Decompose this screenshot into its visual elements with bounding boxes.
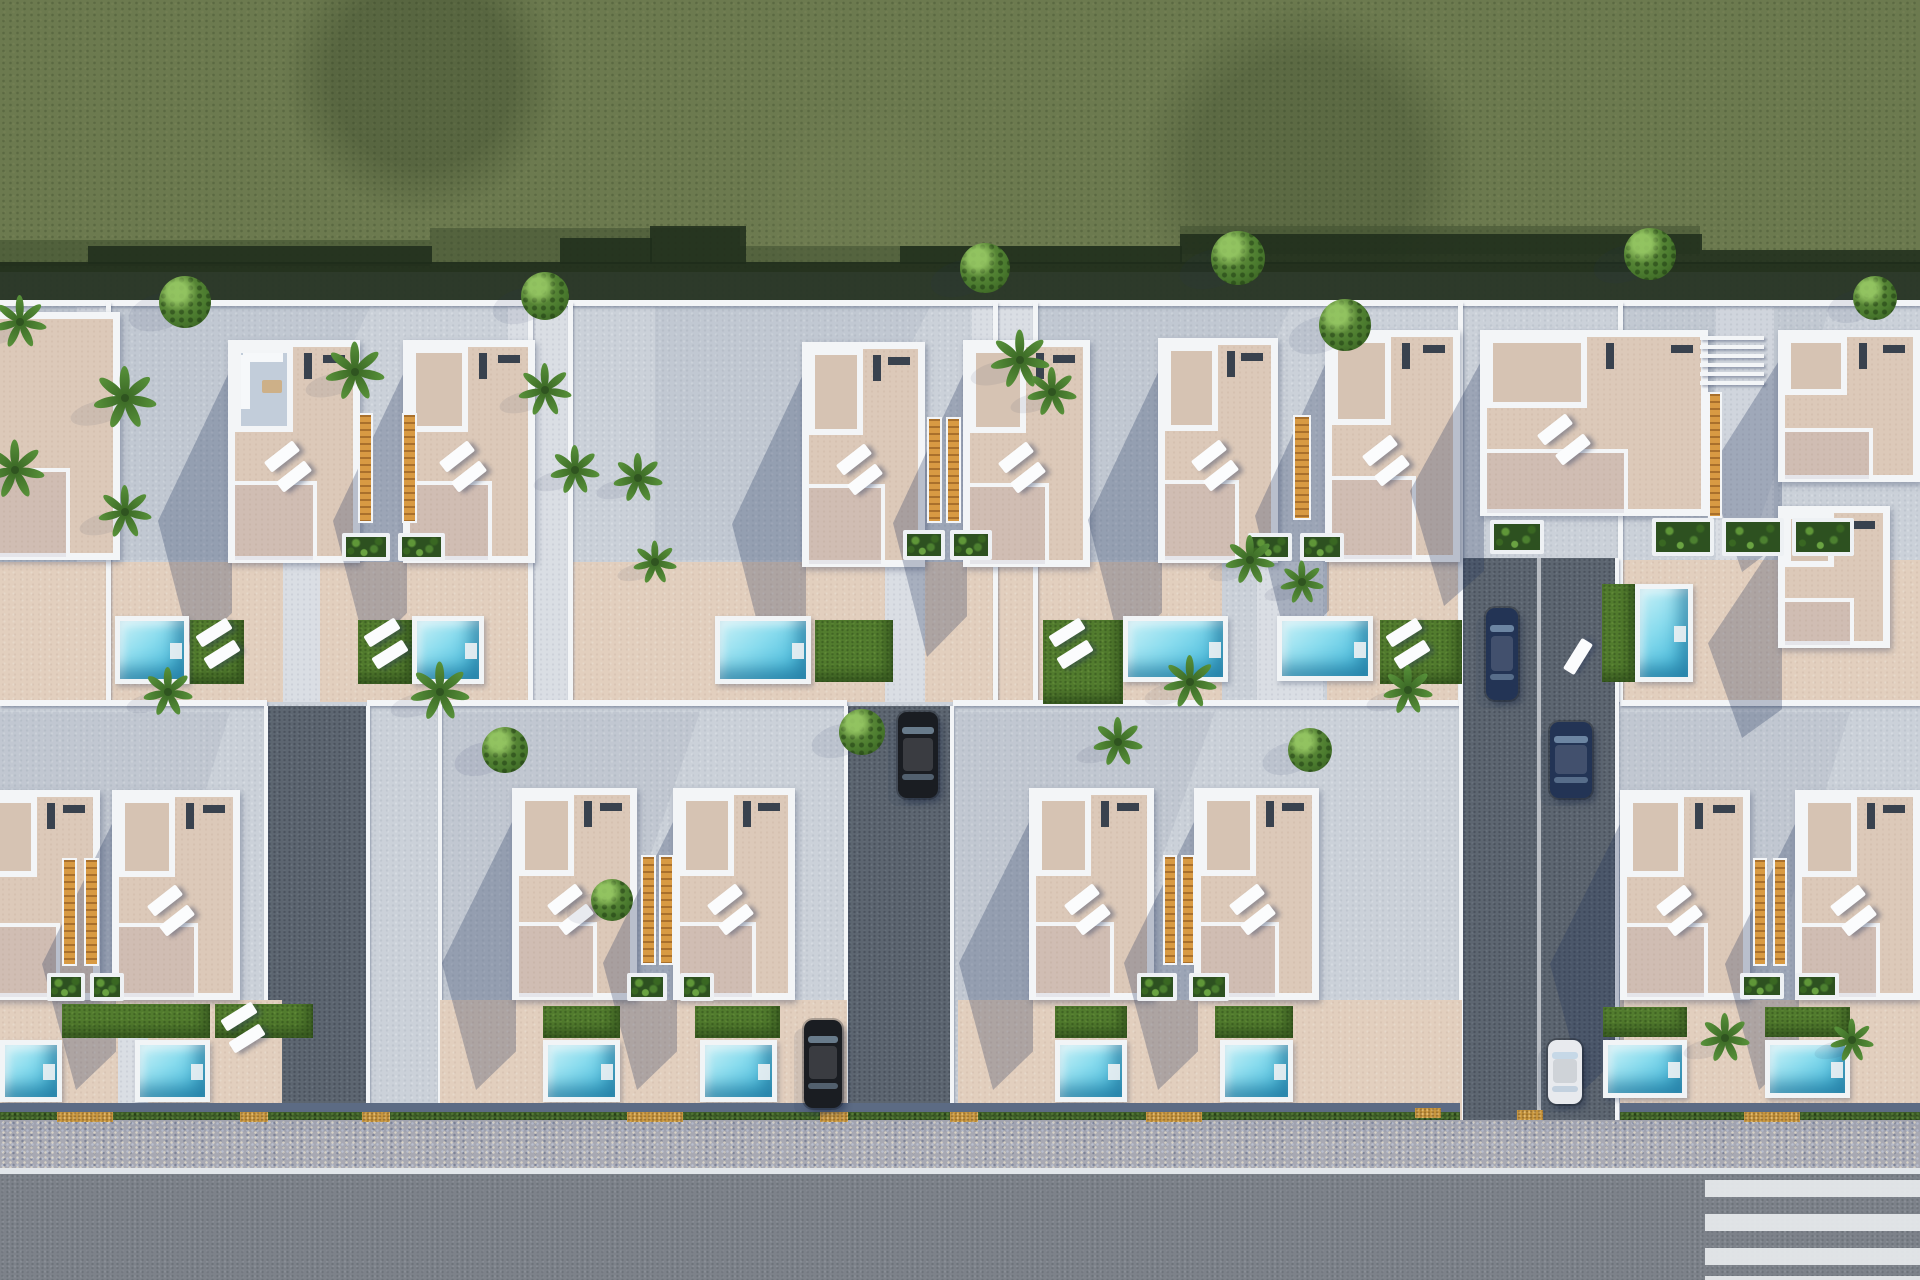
palm-crown [1246, 556, 1254, 564]
rooftop-room [1785, 337, 1847, 395]
lawn-band [1603, 1007, 1687, 1037]
boundary-wall-shade [0, 1103, 1460, 1112]
palm-tree [0, 300, 42, 344]
roof-terrace [1487, 337, 1701, 509]
sun-lounger [371, 639, 408, 669]
car-roof [1491, 636, 1513, 671]
pergola-slat [1700, 372, 1764, 376]
grass-edge-bump [650, 226, 746, 264]
gate-pad [362, 1112, 390, 1122]
tree [839, 709, 885, 755]
palm-crown [11, 466, 19, 474]
road [0, 1174, 1920, 1280]
car-black [804, 1020, 842, 1108]
lot-wall-top [0, 300, 1920, 306]
pool-step [1209, 642, 1221, 658]
roof-terrace [1201, 795, 1312, 993]
stairwell [358, 413, 373, 523]
lower-roof-section [1785, 428, 1873, 479]
pool-step [792, 643, 804, 659]
stairwell [62, 858, 77, 966]
tree [482, 727, 528, 773]
car-windshield [808, 1036, 838, 1043]
stair-window [1402, 343, 1410, 369]
stairwell [641, 855, 656, 965]
car-windshield [902, 727, 934, 734]
pool-vertical [1635, 584, 1693, 682]
pool [135, 1040, 210, 1102]
roof-terrace [119, 797, 233, 993]
palm-tree [1230, 540, 1270, 580]
car-black [898, 712, 938, 798]
stairwell [1293, 415, 1311, 520]
rooftop-room [410, 347, 468, 432]
palm-tree [637, 544, 673, 580]
palm-tree [99, 372, 151, 424]
vent-window [1282, 803, 1304, 811]
lawn-band [543, 1006, 620, 1038]
palm-tree [1834, 1022, 1870, 1058]
lawn-strip [1602, 584, 1635, 682]
tree [1624, 228, 1676, 280]
gate-pad [627, 1112, 683, 1122]
stair-window [1227, 351, 1235, 377]
stair-window [479, 353, 487, 379]
pool-step [191, 1064, 203, 1080]
entry-path [283, 562, 320, 702]
lower-roof-section [1332, 476, 1416, 559]
stairwell [927, 417, 942, 523]
palm-crown [1114, 738, 1122, 746]
stairwell [659, 855, 674, 965]
tree [1288, 728, 1332, 772]
stair-window [743, 801, 751, 827]
tree [1211, 231, 1265, 285]
villa [403, 340, 535, 563]
planter [680, 973, 714, 1001]
vent-window [758, 803, 780, 811]
pool [543, 1040, 620, 1102]
vent-window [1423, 345, 1445, 353]
car-rear-window [808, 1083, 838, 1089]
palm-tree [103, 490, 147, 534]
vent-window [498, 355, 520, 363]
palm-crown [1016, 356, 1024, 364]
tree [960, 243, 1010, 293]
driveway-wall [950, 706, 954, 1122]
lawn [190, 620, 244, 684]
palm-crown [1848, 1036, 1856, 1044]
crosswalk-stripe [1705, 1276, 1920, 1280]
palm-tree [1284, 564, 1320, 600]
stair-window [1101, 801, 1109, 827]
palm-crown [1048, 388, 1056, 396]
grass-edge-bump [1702, 250, 1920, 264]
car-navy [1550, 722, 1592, 798]
planter [1300, 533, 1344, 561]
roof-terrace [1165, 345, 1271, 556]
driveway-wall [366, 706, 370, 1122]
stair-window [584, 801, 592, 827]
planter [1189, 973, 1229, 1001]
grass-edge-bump [88, 246, 432, 264]
pergola-slat [1700, 381, 1764, 385]
stair-window [186, 803, 194, 829]
villa [112, 790, 240, 1000]
planter [903, 530, 945, 560]
palm-tree [1705, 1018, 1745, 1058]
palm-tree [0, 446, 39, 494]
lawn-band [1215, 1006, 1293, 1038]
car-white [1548, 1040, 1582, 1104]
car-rear-window [902, 774, 934, 780]
roof-terrace [1785, 337, 1913, 475]
vent-window [1053, 355, 1075, 363]
pool-step [170, 643, 182, 659]
roof-terrace [1802, 797, 1913, 993]
lower-roof-section [119, 923, 198, 997]
gate-pad [1146, 1112, 1202, 1122]
stairwell [84, 858, 99, 966]
palm-crown [541, 386, 549, 394]
pergola-slat [1700, 363, 1764, 367]
palm-tree [555, 450, 595, 490]
lawn [815, 620, 893, 682]
lawn-band [695, 1006, 780, 1038]
car-rear-window [1552, 1086, 1578, 1092]
palm-crown [16, 318, 24, 326]
stair-window [1859, 343, 1867, 369]
lower-roof-section [1036, 922, 1114, 997]
palm-tree [416, 668, 464, 716]
vent-window [1117, 803, 1139, 811]
palm-crown [121, 508, 129, 516]
vent-window [63, 805, 85, 813]
palm-tree [148, 672, 188, 712]
palm-crown [651, 558, 659, 566]
rooftop-room [1165, 345, 1218, 431]
lower-roof-section [1627, 923, 1708, 997]
vent-window [888, 357, 910, 365]
rooftop-room [1802, 797, 1857, 877]
pool [1055, 1040, 1127, 1102]
car-roof [1555, 745, 1587, 774]
lower-roof-section [809, 484, 885, 564]
car-windshield [1554, 736, 1588, 743]
lower-roof-section [1785, 598, 1854, 645]
planter [1137, 973, 1177, 1001]
planter [1740, 973, 1784, 999]
car-roof [903, 738, 933, 771]
pool-step [43, 1064, 55, 1080]
stairwell [1181, 855, 1195, 965]
sun-lounger [203, 639, 240, 669]
vent-window [203, 805, 225, 813]
planter [1722, 518, 1784, 556]
palm-tree [1388, 670, 1428, 710]
palm-crown [164, 688, 172, 696]
villa [1795, 790, 1920, 1000]
sun-lounger [1056, 639, 1093, 669]
pergola-slat [1700, 354, 1764, 358]
planter [1490, 520, 1544, 554]
rooftop-room [1201, 795, 1256, 876]
stairwell [1753, 858, 1767, 966]
stairwell [946, 417, 961, 523]
villa [673, 788, 795, 1000]
gate-pad [950, 1112, 978, 1122]
palm-tree [618, 458, 658, 498]
stair-window [873, 355, 881, 381]
stair-window [1266, 801, 1274, 827]
pool [1220, 1040, 1293, 1102]
palm-tree [1098, 722, 1138, 762]
crosswalk-stripe [1705, 1248, 1920, 1265]
lawn-band [62, 1004, 210, 1038]
pool-step [1674, 626, 1686, 642]
boundary-wall-shade [1620, 1103, 1920, 1112]
pool-step [1668, 1062, 1680, 1078]
tree [1319, 299, 1371, 351]
car-rear-window [1554, 777, 1588, 783]
vent-window [1241, 353, 1263, 361]
pool-step [1274, 1064, 1286, 1080]
pergola-slat [1700, 345, 1764, 349]
driveway [267, 706, 367, 1122]
palm-crown [571, 466, 579, 474]
rooftop-room [0, 797, 37, 877]
stair-window [304, 353, 312, 379]
planter [1652, 518, 1714, 556]
lower-roof-section [519, 922, 597, 997]
stairwell [1773, 858, 1787, 966]
crosswalk-stripe [1705, 1214, 1920, 1231]
villa-large [1480, 330, 1708, 516]
palm-crown [1404, 686, 1412, 694]
pool [0, 1040, 62, 1102]
car-navy [1486, 608, 1518, 700]
stair-window [1867, 803, 1875, 829]
rooftop-room [119, 797, 175, 877]
lower-roof-section [1165, 480, 1239, 560]
sun-lounger [1393, 639, 1430, 669]
kitchen-counter [241, 355, 250, 409]
palm-tree [523, 368, 567, 412]
roof-terrace [680, 795, 788, 993]
rooftop-kitchen [235, 347, 293, 432]
stairwell [1163, 855, 1177, 965]
planter [1795, 973, 1839, 999]
roof-lounger [1537, 413, 1573, 445]
lower-roof-section [235, 481, 317, 560]
palm-crown [351, 368, 359, 376]
driveway-divider [1537, 558, 1541, 1118]
palm-crown [1186, 678, 1194, 686]
pool-step [465, 643, 477, 659]
stair-window [1695, 803, 1703, 829]
palm-tree [1032, 372, 1072, 412]
pergola-slat [1700, 336, 1764, 340]
palm-crown [1721, 1034, 1729, 1042]
crosswalk-stripe [1705, 1180, 1920, 1197]
pool-step [601, 1064, 613, 1080]
tree [521, 272, 569, 320]
vent-window [1883, 805, 1905, 813]
vent-window [1671, 345, 1693, 353]
gate-pad [1517, 1110, 1543, 1120]
pool [700, 1040, 777, 1102]
palm-tree [331, 348, 379, 396]
palm-crown [1298, 578, 1306, 586]
pool [715, 616, 811, 684]
stairwell [1708, 392, 1722, 518]
stair-window [47, 803, 55, 829]
planter [342, 533, 390, 561]
kitchen-table [262, 380, 282, 393]
pergola [1700, 336, 1764, 390]
vent-window [600, 803, 622, 811]
aerial-development-render [0, 0, 1920, 1280]
planter [47, 973, 85, 1001]
villa [1194, 788, 1319, 1000]
roof-terrace [410, 347, 528, 556]
gate-pad [240, 1112, 268, 1122]
grass-edge-bump [900, 246, 1182, 264]
pool-step [758, 1064, 770, 1080]
palm-crown [436, 688, 444, 696]
pool-step [1831, 1062, 1843, 1078]
villa-right [1778, 330, 1920, 482]
gate-pad [1744, 1112, 1800, 1122]
rooftop-room [809, 349, 863, 435]
pool [1277, 616, 1373, 681]
car-windshield [1552, 1052, 1578, 1059]
planter [398, 533, 445, 561]
tree [1853, 276, 1897, 320]
rooftop-room [519, 795, 574, 876]
rooftop-room [1487, 337, 1587, 408]
car-roof [809, 1046, 837, 1079]
lawn-band [1055, 1006, 1127, 1038]
palm-crown [634, 474, 642, 482]
gate-pad [1415, 1108, 1441, 1118]
pool-step [1354, 642, 1366, 658]
pool-step [1108, 1064, 1120, 1080]
car-windshield [1490, 625, 1514, 632]
vent-window [1883, 345, 1905, 353]
rooftop-room [1627, 797, 1684, 877]
lawn [215, 1004, 313, 1038]
palm-tree [1168, 660, 1212, 704]
vent-window [1713, 805, 1735, 813]
planter [627, 973, 667, 1001]
lawn [1043, 620, 1123, 704]
stairwell [402, 413, 417, 523]
vent-window [1853, 521, 1875, 529]
lot-wall [568, 302, 573, 702]
palm-crown [121, 394, 129, 402]
lawn [358, 620, 412, 684]
rooftop-room [1036, 795, 1091, 876]
car-rear-window [1490, 674, 1514, 680]
grass-edge-bump [560, 238, 652, 264]
tree [159, 276, 211, 328]
stair-window [1606, 343, 1614, 369]
gate-pad [57, 1112, 113, 1122]
rooftop-room [680, 795, 734, 876]
planter [1792, 518, 1854, 556]
planter [90, 973, 124, 1001]
pool [1603, 1040, 1687, 1098]
tree [591, 879, 633, 921]
car-roof [1553, 1059, 1577, 1083]
planter [950, 530, 992, 560]
